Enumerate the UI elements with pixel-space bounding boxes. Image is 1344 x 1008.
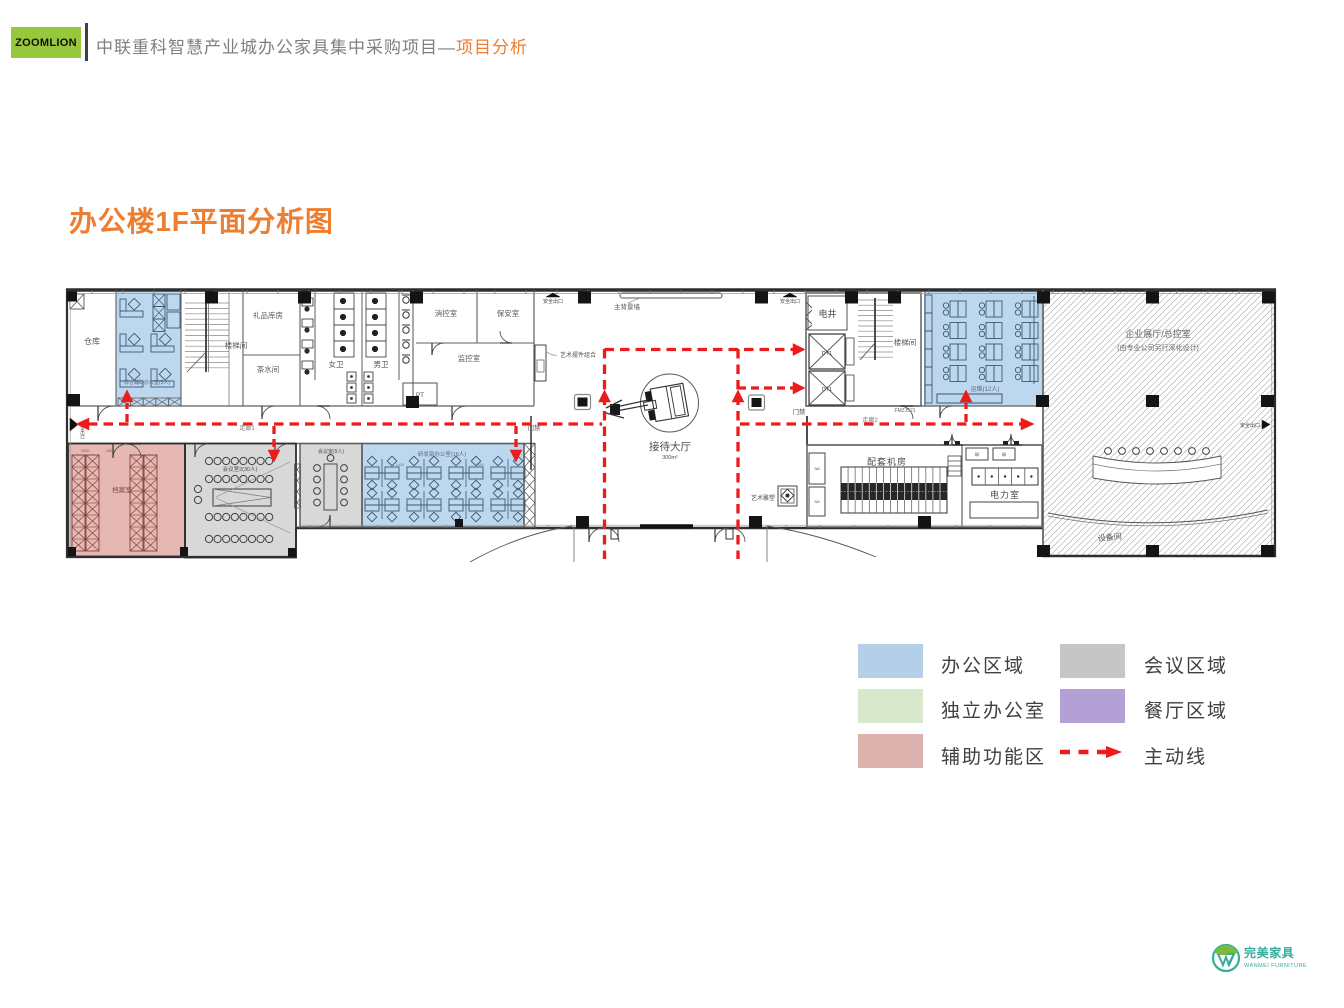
svg-text:礼品库房: 礼品库房 bbox=[253, 310, 283, 320]
svg-text:WANMEI FURNITURE: WANMEI FURNITURE bbox=[1244, 963, 1307, 969]
svg-text:艺术雕塑: 艺术雕塑 bbox=[751, 494, 775, 502]
svg-text:运维(12人): 运维(12人) bbox=[971, 385, 1000, 393]
svg-text:会议室2(30人): 会议室2(30人) bbox=[223, 465, 258, 473]
svg-text:保安室: 保安室 bbox=[497, 308, 520, 318]
svg-text:男卫: 男卫 bbox=[374, 360, 389, 369]
svg-text:DT1: DT1 bbox=[822, 351, 832, 357]
svg-text:楼梯间: 楼梯间 bbox=[894, 337, 917, 347]
svg-text:FMZJ521: FMZJ521 bbox=[894, 408, 915, 414]
svg-text:1400: 1400 bbox=[396, 463, 404, 467]
svg-text:档案室: 档案室 bbox=[112, 485, 132, 494]
svg-text:综合辅助办公室(5人): 综合辅助办公室(5人) bbox=[124, 379, 170, 386]
svg-text:茶水间: 茶水间 bbox=[257, 364, 280, 374]
svg-text:女卫: 女卫 bbox=[329, 359, 344, 369]
svg-text:1400: 1400 bbox=[476, 463, 484, 467]
svg-text:走廊1: 走廊1 bbox=[239, 424, 255, 432]
svg-text:完美家具: 完美家具 bbox=[1244, 945, 1294, 960]
svg-text:接待大厅: 接待大厅 bbox=[649, 440, 691, 453]
svg-text:主背景墙: 主背景墙 bbox=[614, 302, 641, 311]
svg-text:电井: 电井 bbox=[818, 308, 836, 319]
svg-text:(由专业公司另行深化设计): (由专业公司另行深化设计) bbox=[1117, 343, 1199, 352]
svg-text:N8: N8 bbox=[814, 466, 820, 471]
svg-text:DT1: DT1 bbox=[822, 387, 832, 393]
svg-text:安全出口: 安全出口 bbox=[780, 298, 800, 305]
svg-text:⊞: ⊞ bbox=[975, 452, 979, 458]
svg-text:300m²: 300m² bbox=[662, 455, 678, 461]
svg-text:安全出口: 安全出口 bbox=[1240, 422, 1260, 429]
svg-text:N8: N8 bbox=[814, 499, 820, 504]
svg-text:安全出口: 安全出口 bbox=[543, 298, 563, 305]
svg-text:消控室: 消控室 bbox=[435, 308, 458, 318]
svg-text:门禁: 门禁 bbox=[793, 407, 807, 416]
svg-text:电力室: 电力室 bbox=[990, 489, 1020, 500]
svg-text:艺术摆件组合: 艺术摆件组合 bbox=[560, 351, 596, 359]
svg-text:监控室: 监控室 bbox=[458, 353, 481, 363]
svg-text:走廊2: 走廊2 bbox=[862, 416, 878, 424]
svg-text:仓库: 仓库 bbox=[84, 336, 100, 346]
svg-text:研发部办公室(16人): 研发部办公室(16人) bbox=[418, 450, 466, 458]
svg-text:⊞: ⊞ bbox=[1002, 452, 1006, 458]
svg-text:楼梯间: 楼梯间 bbox=[225, 340, 248, 350]
svg-text:配套机房: 配套机房 bbox=[867, 456, 907, 467]
svg-text:2000: 2000 bbox=[81, 448, 91, 453]
svg-text:会议室(9人): 会议室(9人) bbox=[318, 448, 344, 455]
svg-text:企业展厅/总控室: 企业展厅/总控室 bbox=[1125, 328, 1191, 339]
